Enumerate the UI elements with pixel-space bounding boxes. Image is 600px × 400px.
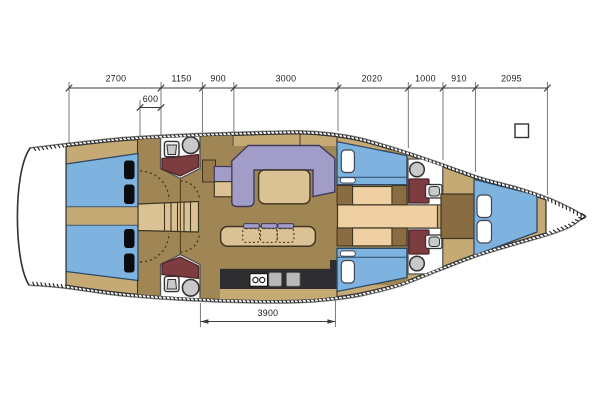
svg-text:1150: 1150 (171, 74, 191, 84)
svg-text:2700: 2700 (106, 74, 127, 84)
svg-text:2095: 2095 (501, 74, 522, 84)
svg-text:1000: 1000 (415, 74, 436, 84)
svg-text:3900: 3900 (258, 308, 279, 318)
svg-text:600: 600 (143, 94, 159, 104)
svg-text:910: 910 (451, 74, 467, 84)
svg-text:900: 900 (210, 74, 226, 84)
svg-text:2020: 2020 (362, 74, 383, 84)
svg-text:3000: 3000 (276, 74, 297, 84)
